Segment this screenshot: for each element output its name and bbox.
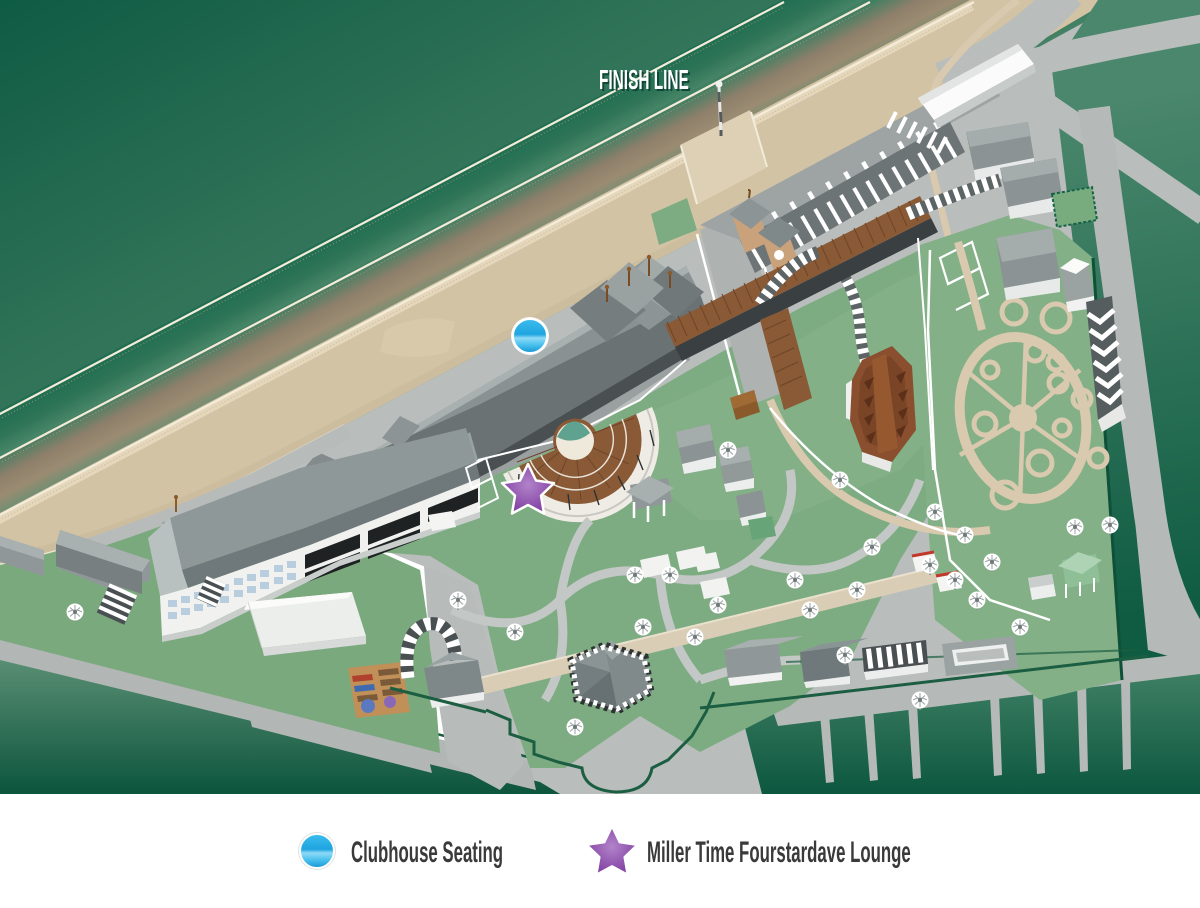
svg-text:Miller Time Fourstardave Loung: Miller Time Fourstardave Lounge (647, 836, 911, 869)
svg-text:FINISH LINE: FINISH LINE (599, 64, 689, 95)
svg-text:Clubhouse Seating: Clubhouse Seating (351, 836, 503, 869)
